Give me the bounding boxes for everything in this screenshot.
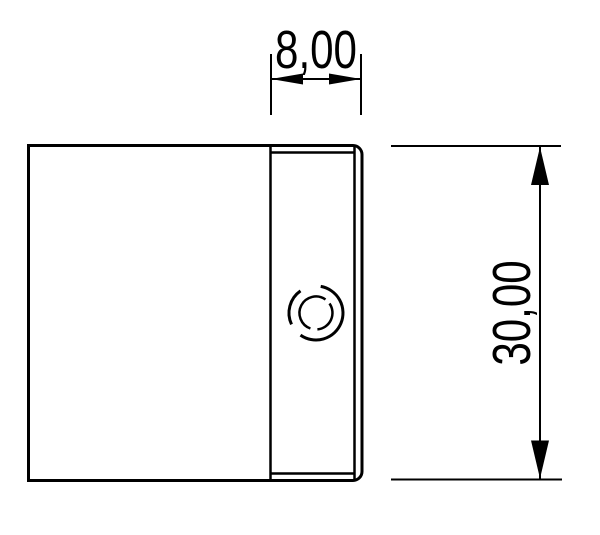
technical-drawing-page: 8,00 30,00	[0, 0, 600, 535]
threaded-hole	[289, 286, 343, 340]
part-outer-contour	[29, 146, 363, 481]
height-arrowhead-top	[531, 147, 549, 185]
hole-inner-arc-a	[299, 296, 325, 328]
thread-outer-arc-right	[301, 286, 343, 340]
width-dimension: 8,00	[271, 20, 361, 115]
height-dimension: 30,00	[391, 146, 562, 480]
height-arrowhead-bottom	[531, 441, 549, 479]
width-dimension-label: 8,00	[275, 20, 357, 80]
technical-drawing-canvas: 8,00 30,00	[0, 0, 600, 535]
height-dimension-label: 30,00	[482, 260, 542, 365]
thread-outer-arc-left	[289, 291, 301, 325]
hole-inner-arc-b	[317, 304, 332, 330]
part-outline	[29, 146, 363, 481]
